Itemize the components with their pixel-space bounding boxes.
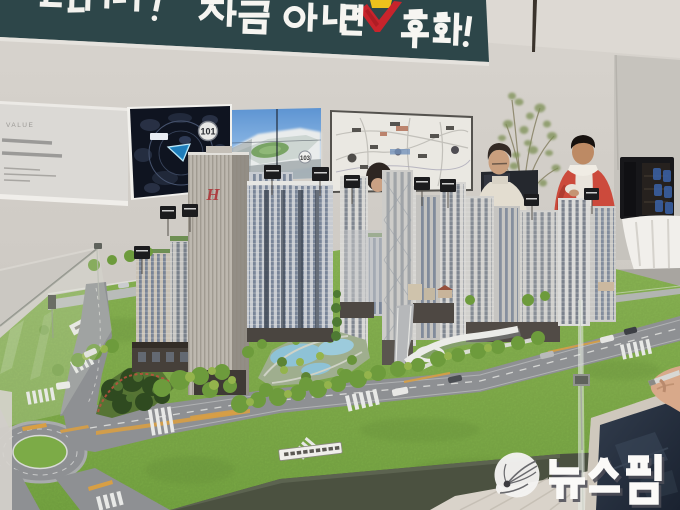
- svg-text:101: 101: [200, 127, 215, 137]
- svg-text:VALUE: VALUE: [6, 122, 34, 129]
- svg-text:103: 103: [300, 156, 311, 162]
- svg-text:H: H: [205, 185, 220, 204]
